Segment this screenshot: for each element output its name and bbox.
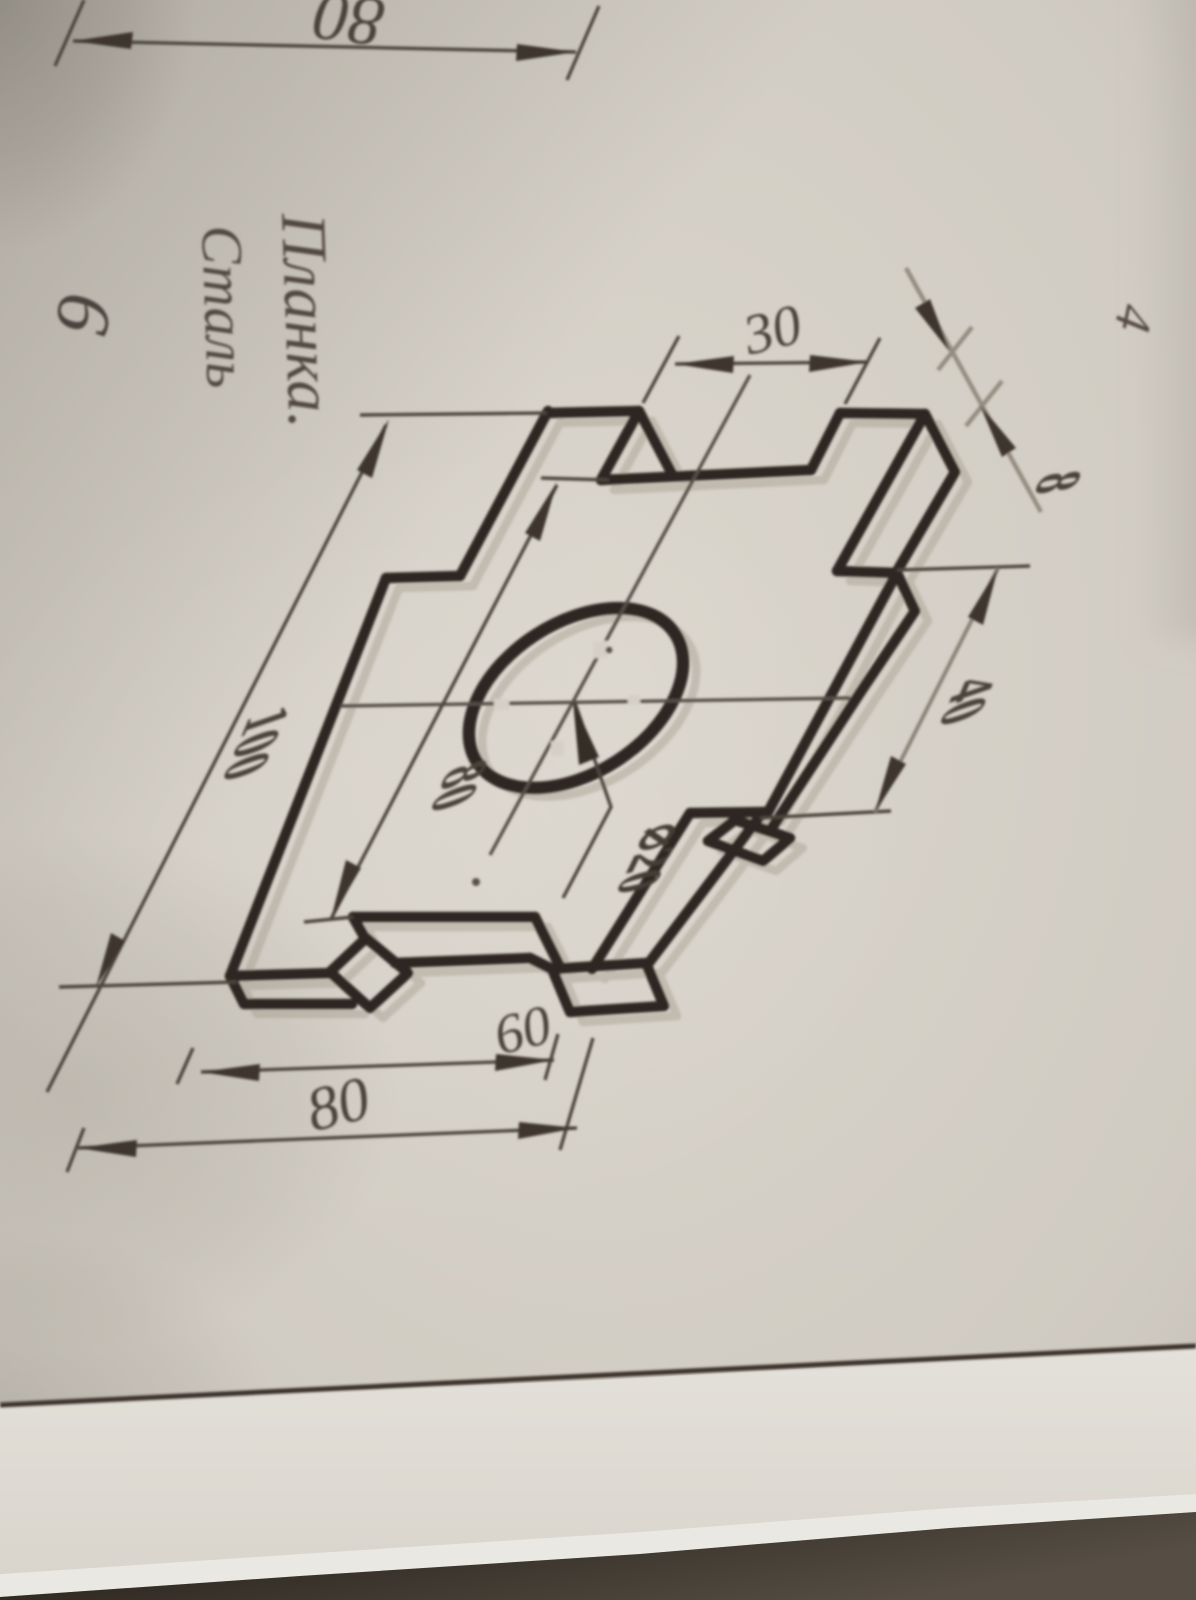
svg-text:Сталь: Сталь xyxy=(189,224,260,389)
svg-text:80: 80 xyxy=(310,0,389,61)
svg-text:Планка.: Планка. xyxy=(268,211,346,429)
